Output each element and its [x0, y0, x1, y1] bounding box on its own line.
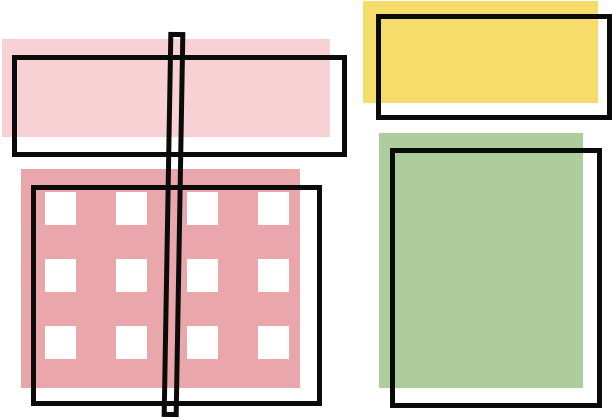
- illustration-canvas: [0, 0, 612, 420]
- outline-frame-top-right: [376, 14, 612, 120]
- outline-frame-bottom-right: [390, 148, 602, 408]
